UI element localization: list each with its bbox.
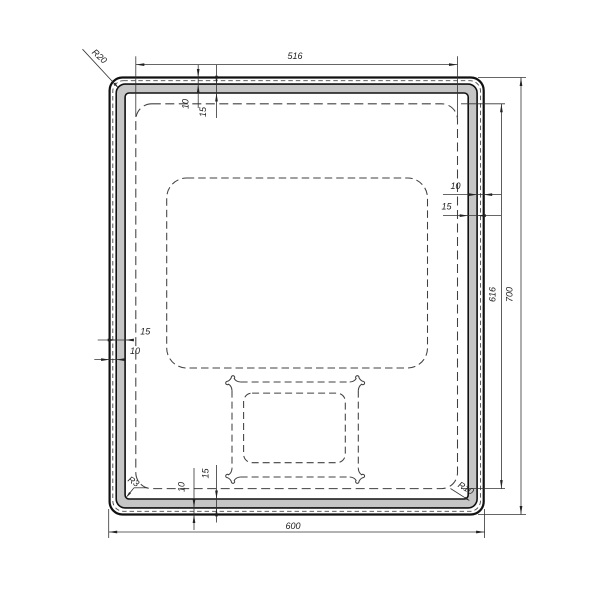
- svg-text:10: 10: [181, 99, 191, 109]
- svg-text:616: 616: [488, 287, 498, 302]
- svg-text:15: 15: [441, 201, 452, 211]
- svg-text:15: 15: [198, 106, 208, 117]
- svg-text:10: 10: [177, 482, 187, 492]
- svg-text:15: 15: [140, 327, 151, 337]
- svg-text:R20: R20: [90, 47, 109, 65]
- svg-text:516: 516: [287, 51, 302, 61]
- svg-text:700: 700: [505, 287, 515, 302]
- svg-text:600: 600: [285, 521, 300, 531]
- svg-text:10: 10: [130, 346, 140, 356]
- svg-text:10: 10: [450, 181, 460, 191]
- svg-text:15: 15: [201, 468, 211, 479]
